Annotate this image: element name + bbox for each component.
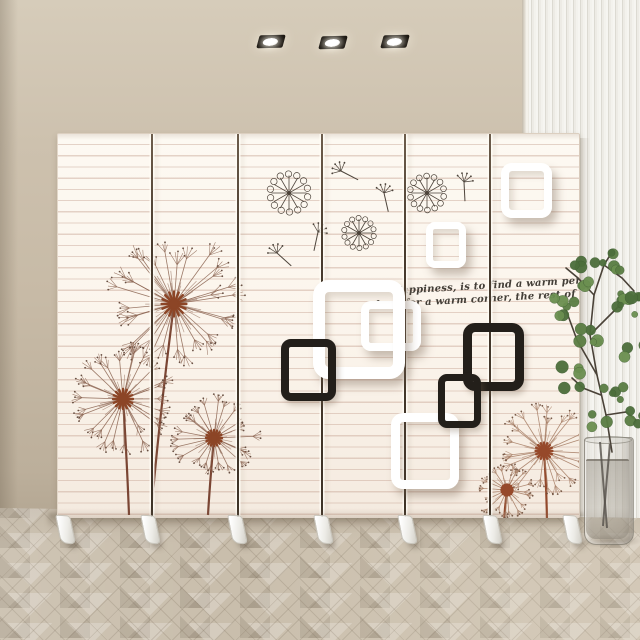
wheel-flower-motif [267,171,311,215]
vase-water [586,459,629,539]
black-3d-square [281,339,336,401]
floating-seed-motif [300,218,331,250]
panel-seam [151,134,153,518]
white-3d-square [426,222,466,268]
recessed-light [318,36,348,49]
vase-rim [584,436,632,444]
glass-vase [584,437,634,545]
floating-seed-motif [328,158,359,191]
floating-seed-motif [448,169,476,201]
light-bulb-glow [386,37,403,45]
dandelion-illustration [72,342,174,516]
panel-seam [237,134,239,518]
folding-screen: Happiness, is to find a warm person, loo… [57,133,580,518]
recessed-light [256,35,286,48]
recessed-light [380,35,410,48]
dandelion-illustration [106,241,246,515]
dandelion-illustration [502,402,579,518]
wheel-flower-motif [342,215,377,250]
floating-seed-motif [371,181,396,212]
light-bulb-glow [324,38,341,46]
wall-corner-shadow [0,0,18,512]
black-3d-square [438,374,481,428]
room-scene: Happiness, is to find a warm person, loo… [0,0,640,640]
light-bulb-glow [262,37,279,45]
screen-top-shade [58,134,579,140]
dandelion-illustration [170,393,262,515]
floating-seed-motif [265,241,291,273]
white-3d-square [501,163,552,218]
wheel-flower-motif [407,173,446,213]
